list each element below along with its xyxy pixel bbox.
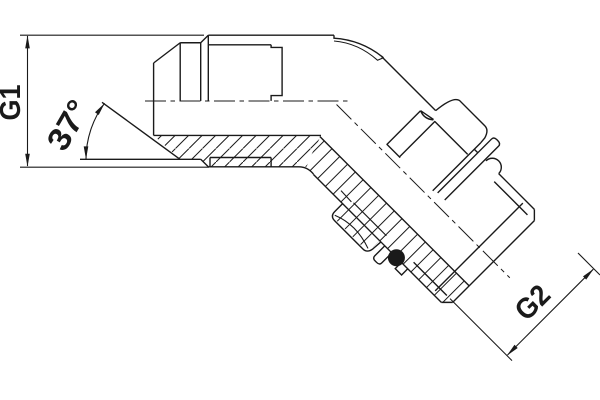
- svg-text:G1: G1: [0, 85, 27, 121]
